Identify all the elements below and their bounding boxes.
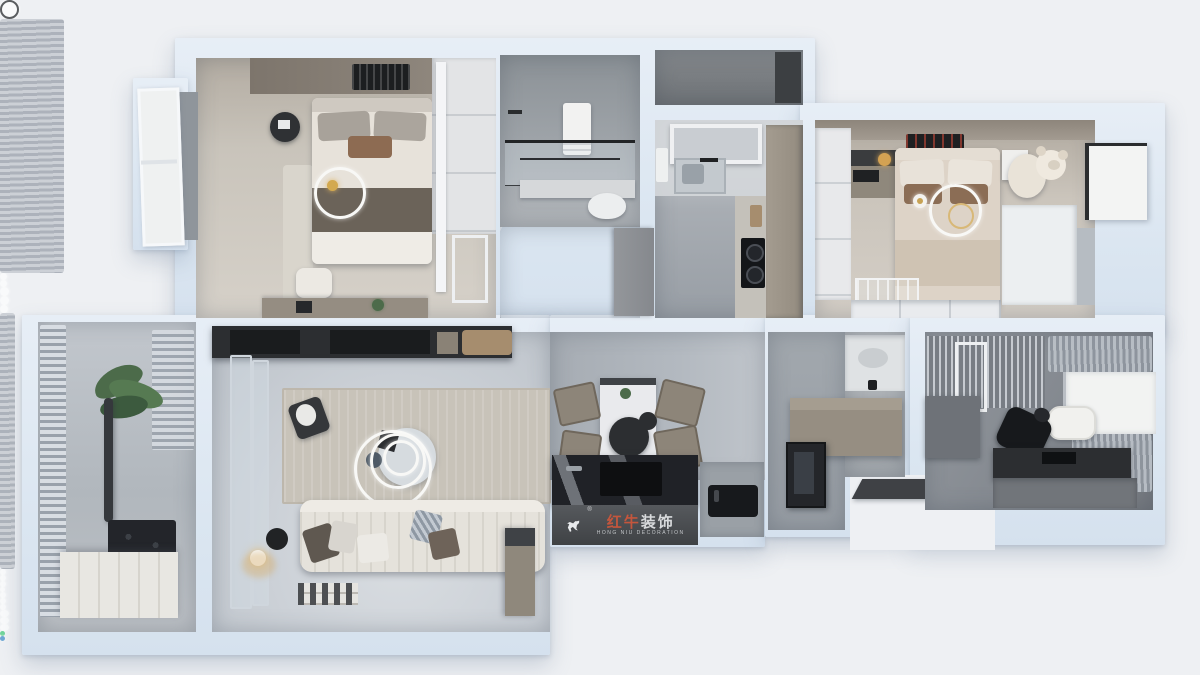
registered-mark: ® [587, 507, 591, 513]
corridor-light-2 [0, 617, 9, 624]
magazine-rug [298, 583, 358, 605]
teddy-bear-muzzle [1048, 160, 1060, 170]
dining-table-end [600, 378, 656, 385]
ottoman-master [296, 268, 332, 298]
kitchen-boiler [656, 148, 668, 182]
pet-cushion [1048, 406, 1096, 440]
media-panel-1 [230, 330, 300, 354]
bedroom2-pillow-left [899, 159, 944, 187]
burner-1 [746, 244, 764, 262]
floorplan-render: ® 红牛装饰 HONG NIU DECORATION [0, 0, 1200, 675]
bedroom2-pillow-right [947, 159, 992, 187]
bedroom2-bench [1002, 205, 1077, 305]
shower-glass-rail [520, 158, 620, 160]
brand-tagline: HONG NIU DECORATION [597, 531, 685, 536]
master-wardrobe-slide [436, 62, 446, 292]
toilet [588, 193, 626, 219]
bath2-faucet [868, 380, 877, 390]
master-accent-pillow [348, 136, 392, 158]
sofa-pillow-brown [427, 527, 460, 560]
balcony-rail [104, 398, 113, 522]
master-duvet-foot [312, 232, 432, 264]
watermark-text: 红牛装饰 HONG NIU DECORATION [597, 515, 685, 536]
chandelier-ring-inner [383, 440, 419, 476]
shower-head [508, 110, 522, 114]
flower-center [917, 198, 923, 204]
mirror-reflection [794, 452, 814, 494]
floor-lamp-shade [266, 528, 288, 550]
bedroom2-headboard [895, 148, 1000, 160]
ladder-shelf [452, 235, 488, 303]
study-side-cabinet [925, 396, 980, 458]
master-curtains [0, 19, 64, 273]
living-tall-cabinet-top [505, 528, 535, 546]
island-hob [600, 462, 662, 496]
balcony-louver-right [152, 330, 194, 450]
hall-light-1 [0, 273, 7, 280]
desk-laptop [296, 301, 312, 313]
desk-lamp-gold [878, 153, 891, 166]
burner-2 [746, 266, 764, 284]
sofa-pillow-gray [328, 520, 359, 554]
table-plant [620, 388, 631, 399]
bull-icon [565, 518, 582, 533]
ac-vent-master [352, 64, 410, 90]
kitchen-tall-cabinets [766, 125, 803, 318]
island-front-panel: ® 红牛装饰 HONG NIU DECORATION [552, 505, 698, 545]
wood-tray [462, 330, 512, 355]
island-faucet [566, 466, 582, 471]
hall-light-2 [0, 280, 7, 287]
balcony-platform [60, 552, 178, 618]
corridor-light-1 [0, 610, 9, 617]
desk-plant [372, 299, 384, 311]
tray-item [0, 305, 8, 313]
peninsula-faucet [714, 490, 719, 502]
media-taupe-box [437, 332, 458, 354]
bedroom2-window [1085, 143, 1147, 220]
bedroom2-wardrobe-left [815, 128, 851, 300]
bedroom2-wardrobe-bottom [851, 300, 1001, 318]
media-knob-2 [0, 296, 9, 305]
media-panel-2 [330, 330, 430, 354]
desk-monitor [1042, 452, 1076, 464]
bedroom2-niche [1077, 228, 1095, 305]
master-window [137, 87, 184, 246]
brand-name-white: 装饰 [641, 514, 675, 531]
bath2-sink [858, 348, 888, 368]
desk-led-2 [0, 636, 5, 641]
desk-sign [853, 170, 879, 182]
teddy-bear-ear-1 [1036, 146, 1046, 156]
sofa-pillow-white [357, 533, 390, 564]
teddy-bear-ear-2 [1058, 150, 1068, 160]
hall-door-panel [614, 228, 654, 316]
floor-lamp-glow [242, 552, 276, 578]
nightstand-card [278, 120, 290, 129]
sink-faucet [700, 158, 718, 162]
study-platform [993, 478, 1137, 508]
brand-name: 红牛装饰 [607, 515, 675, 530]
brand-name-red: 红牛 [607, 514, 641, 531]
sink-basin [682, 164, 704, 184]
corridor-light-3 [0, 624, 9, 631]
laundry-cabinet-top [790, 398, 902, 410]
equipment-unit [775, 52, 801, 103]
ceiling-lamp-master [0, 0, 19, 19]
master-desk [262, 298, 428, 318]
media-knob-1 [0, 287, 9, 296]
ring-light-master [314, 167, 366, 219]
living-curtains [0, 313, 15, 569]
gold-ring-lamp [948, 203, 974, 229]
master-headboard [312, 98, 432, 112]
cutting-board [750, 205, 762, 227]
study-curtain-top [1048, 336, 1152, 372]
